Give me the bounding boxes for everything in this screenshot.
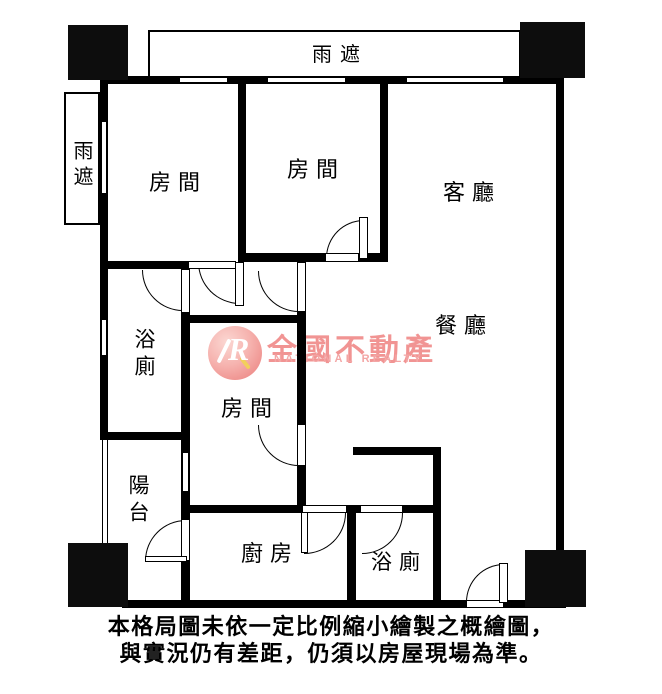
column-top-left: [68, 25, 128, 80]
window-bedroom2-top: [268, 76, 345, 84]
doorway-corridor: [297, 262, 306, 312]
door-arc-balcony: [145, 520, 186, 561]
wall-bottom-1: [122, 600, 466, 608]
balcony-railing: [102, 440, 108, 543]
wall-bathroom2-left: [347, 513, 356, 600]
column-bottom-left: [68, 543, 128, 607]
wall-bathroom1-bottom: [108, 432, 190, 440]
wall-balcony-right-1: [181, 440, 190, 453]
wall-left-1: [100, 76, 108, 122]
doorway-bathroom1: [181, 269, 190, 313]
wall-balcony-right-2: [181, 491, 190, 519]
wall-bathroom2-top-2: [403, 505, 433, 513]
doorway-bathroom2: [360, 505, 403, 513]
room-label-bathroom2: 浴廁: [371, 551, 427, 574]
floorplan-canvas: R 全國不動產 NATIONAL REALTY: [0, 0, 662, 694]
door-leaf-entrance: [499, 563, 508, 603]
wall-top-3: [345, 76, 407, 84]
doorway-bedroom3: [297, 424, 306, 466]
room-label-bedroom1: 房間: [149, 171, 207, 195]
room-label-kitchen: 廚房: [241, 542, 299, 566]
doorway-kitchen: [302, 505, 347, 513]
doorway-bedroom1: [188, 261, 236, 269]
realty-logo-letter: R: [228, 331, 249, 368]
room-label-dining: 餐廳: [435, 314, 493, 338]
column-bottom-right: [525, 550, 586, 607]
room-label-canopy-left: 雨遮: [71, 140, 91, 192]
window-bedroom1-left: [100, 122, 108, 193]
window-bathroom-left: [100, 320, 108, 355]
wall-bedroom1-2-divider: [238, 84, 246, 254]
door-arc-bedroom3: [258, 425, 299, 466]
room-label-canopy-top: 雨遮: [312, 44, 368, 66]
disclaimer-line2: 與實況仍有差距，仍須以房屋現場為準。: [0, 640, 662, 667]
wall-bedroom2-right: [380, 84, 388, 262]
door-leaf-balcony: [145, 556, 187, 562]
wall-bathroom2-top-1: [346, 505, 360, 513]
wall-left-3: [100, 355, 108, 440]
room-label-living: 客廳: [443, 181, 501, 205]
door-arc-bathroom2: [362, 513, 403, 554]
wall-bedroom2-bottom-1: [238, 253, 325, 262]
wall-left-2: [100, 193, 108, 320]
wall-dining-nook: [353, 447, 441, 455]
room-label-bathroom1: 浴廁: [133, 328, 154, 382]
wall-kitchen-top: [190, 505, 302, 513]
wall-bedroom3-right-1: [297, 311, 306, 424]
disclaimer-text: 本格局圖未依一定比例縮小繪製之概繪圖， 與實況仍有差距，仍須以房屋現場為準。: [0, 613, 662, 667]
wall-top-2: [227, 76, 268, 84]
wall-bedroom1-bottom: [108, 261, 188, 269]
window-balcony-bedroom: [181, 453, 190, 491]
room-label-bedroom2: 房間: [287, 158, 345, 182]
door-arc-corridor: [258, 271, 299, 312]
room-label-balcony: 陽台: [127, 474, 148, 528]
wall-bathroom2-right: [433, 447, 441, 600]
door-leaf-kitchen: [301, 512, 308, 553]
wall-bathroom1-right: [181, 311, 190, 432]
door-leaf-bedroom2: [359, 217, 368, 259]
disclaimer-line1: 本格局圖未依一定比例縮小繪製之概繪圖，: [0, 613, 662, 640]
doorway-balcony: [181, 519, 190, 561]
doorway-bedroom2: [325, 253, 359, 262]
column-top-right: [520, 22, 585, 78]
wall-right: [556, 76, 564, 556]
wall-balcony-right-3: [181, 559, 190, 600]
window-bedroom1-top: [180, 76, 227, 84]
room-label-bedroom3: 房間: [221, 397, 279, 421]
door-arc-kitchen: [304, 513, 346, 554]
wall-bedroom3-top: [188, 315, 306, 323]
window-living-top: [407, 76, 503, 84]
door-leaf-bedroom1: [235, 262, 244, 306]
door-arc-bathroom1: [142, 270, 183, 311]
